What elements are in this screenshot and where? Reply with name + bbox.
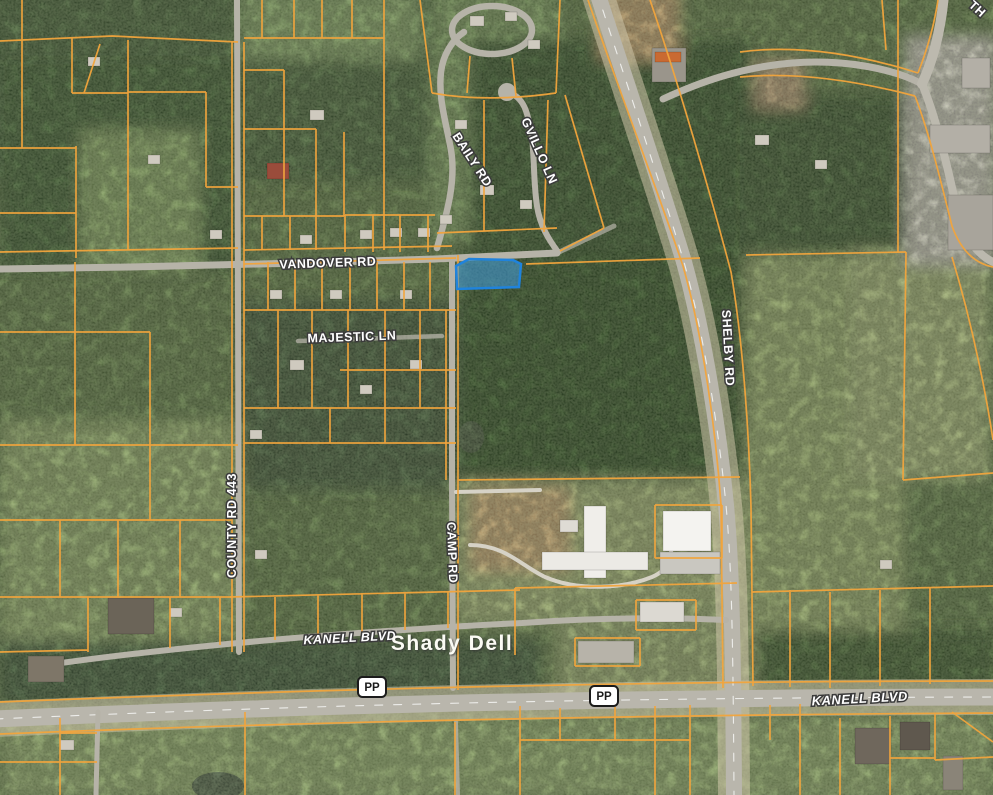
route-shield-pp-west: PP bbox=[358, 677, 386, 697]
road-label-county443: COUNTY RD 443 bbox=[225, 473, 239, 578]
road-label-camp: CAMP RD bbox=[444, 522, 460, 584]
place-label-shady-dell: Shady Dell bbox=[391, 632, 513, 655]
route-shield-text: PP bbox=[596, 691, 612, 703]
commercial-building-2 bbox=[640, 602, 684, 622]
road-south-west bbox=[96, 712, 98, 795]
road-camp-south bbox=[456, 722, 458, 795]
selected-parcel[interactable] bbox=[456, 259, 521, 289]
building-se-2 bbox=[900, 722, 930, 750]
imagery-layer bbox=[0, 0, 993, 795]
road-school-drive-north bbox=[456, 490, 540, 492]
store-building bbox=[663, 511, 711, 551]
plaza-building-3 bbox=[962, 58, 990, 88]
road-camp bbox=[452, 259, 453, 688]
canopy-texture-light bbox=[0, 0, 993, 795]
route-shield-text: PP bbox=[364, 682, 380, 694]
plaza-building bbox=[930, 125, 990, 153]
building-se-3 bbox=[943, 756, 963, 790]
route-shield-pp-east: PP bbox=[590, 686, 618, 706]
plaza-building-2 bbox=[948, 195, 993, 250]
red-roof-house bbox=[267, 163, 289, 179]
building-sw bbox=[28, 656, 64, 682]
store-parking bbox=[660, 552, 720, 574]
church-southeast bbox=[855, 728, 891, 764]
satellite-map[interactable]: VANDOVER RD MAJESTIC LN BAILY RD GVILLO … bbox=[0, 0, 993, 795]
commercial-building bbox=[578, 641, 634, 663]
map-viewport[interactable]: VANDOVER RD MAJESTIC LN BAILY RD GVILLO … bbox=[0, 0, 993, 795]
church-building bbox=[108, 598, 154, 634]
